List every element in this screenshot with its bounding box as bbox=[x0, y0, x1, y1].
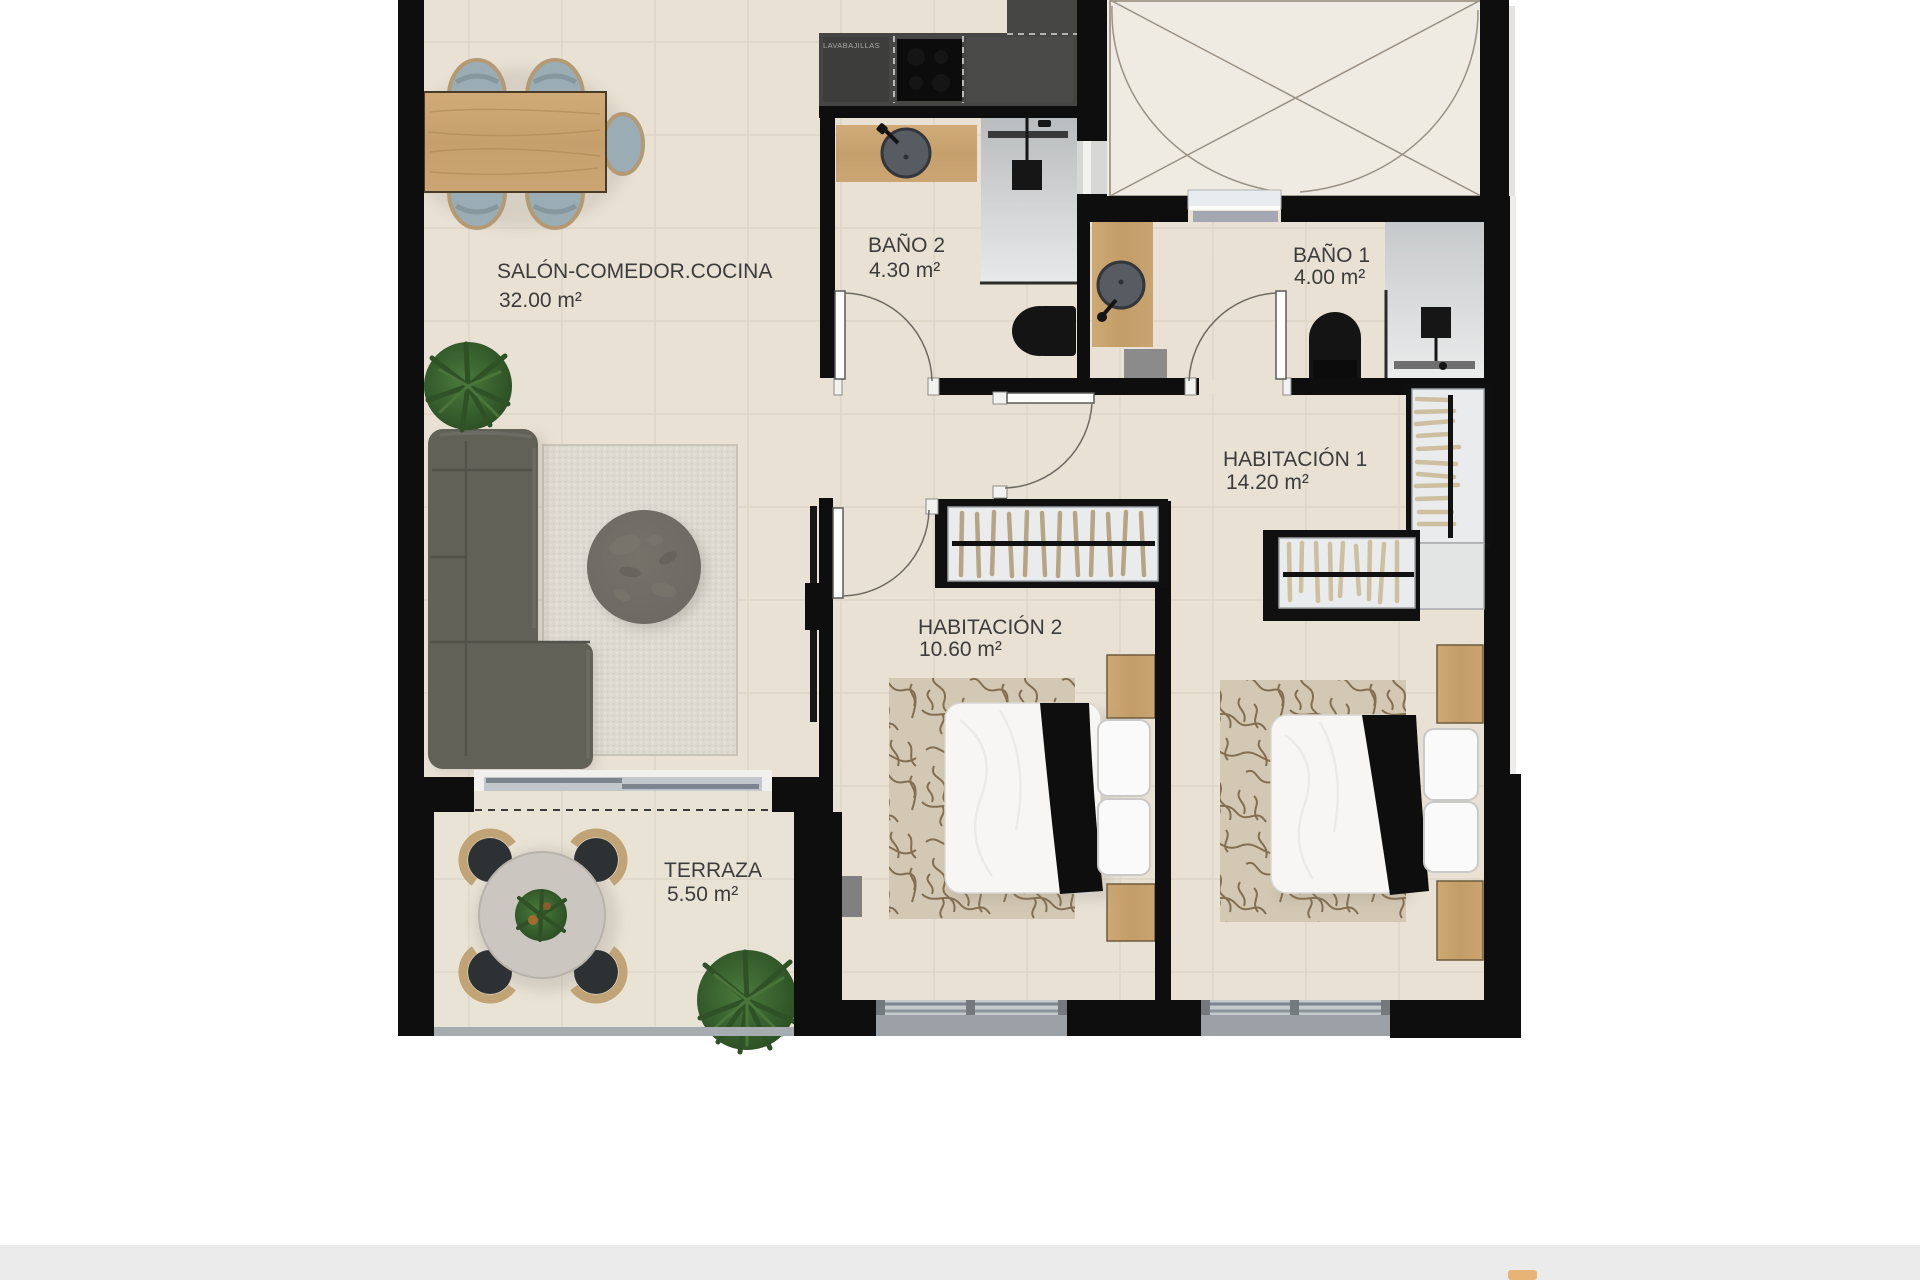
svg-text:HABITACIÓN 1: HABITACIÓN 1 bbox=[1223, 448, 1367, 471]
svg-text:5.50 m²: 5.50 m² bbox=[667, 883, 738, 906]
svg-text:LAVABAJILLAS: LAVABAJILLAS bbox=[823, 41, 880, 50]
svg-text:SALÓN-COMEDOR.COCINA: SALÓN-COMEDOR.COCINA bbox=[497, 260, 772, 283]
svg-text:BAÑO 2: BAÑO 2 bbox=[868, 233, 945, 257]
svg-text:4.30 m²: 4.30 m² bbox=[869, 259, 940, 282]
svg-text:14.20 m²: 14.20 m² bbox=[1226, 471, 1309, 494]
svg-text:32.00 m²: 32.00 m² bbox=[499, 289, 582, 312]
svg-text:10.60 m²: 10.60 m² bbox=[919, 638, 1002, 661]
svg-text:HABITACIÓN 2: HABITACIÓN 2 bbox=[918, 616, 1062, 639]
svg-text:BAÑO 1: BAÑO 1 bbox=[1293, 243, 1370, 267]
svg-text:4.00 m²: 4.00 m² bbox=[1294, 266, 1365, 289]
svg-text:TERRAZA: TERRAZA bbox=[664, 859, 762, 882]
